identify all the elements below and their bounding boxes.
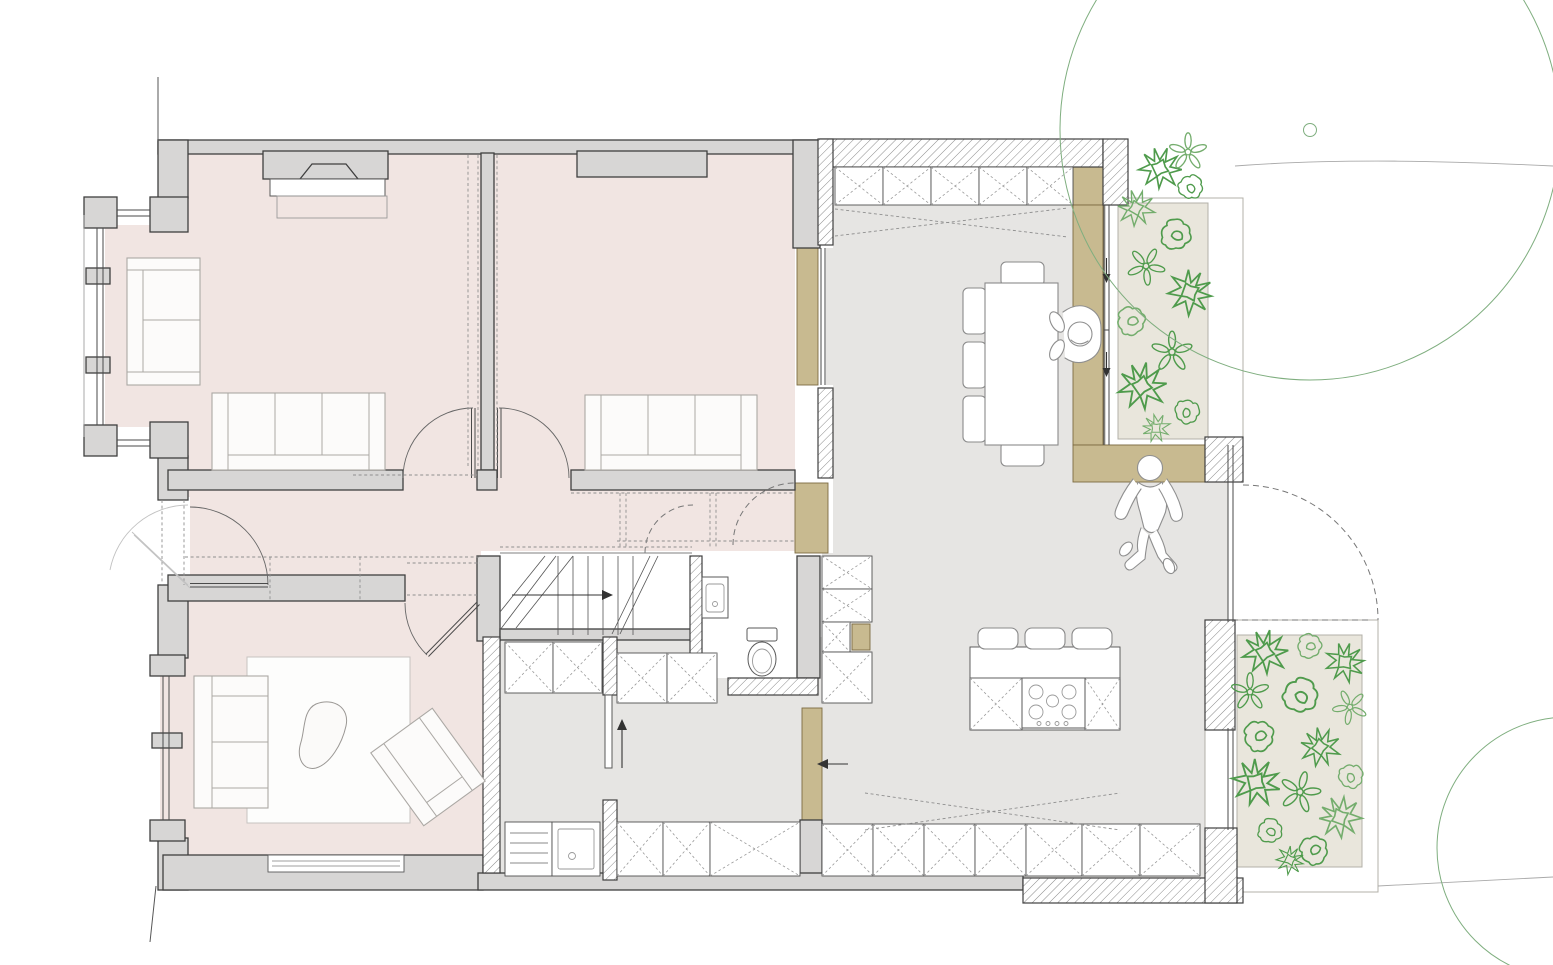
pier-garden-mid bbox=[1205, 620, 1235, 730]
room2-east-wall bbox=[793, 140, 820, 248]
drainer-unit bbox=[505, 822, 552, 876]
dining-chair bbox=[963, 396, 986, 442]
bay1-mullion bbox=[86, 268, 110, 284]
fireplace-mantel bbox=[270, 179, 385, 196]
floor-plan-canvas bbox=[0, 0, 1553, 965]
pier-garden-north bbox=[1205, 437, 1243, 482]
pocket-wall-b bbox=[603, 800, 617, 880]
floor-plan-drawing bbox=[0, 0, 1553, 965]
wc-east-wall bbox=[797, 556, 820, 678]
tan-door-top bbox=[1073, 167, 1105, 205]
tree-trunk-marker bbox=[1304, 124, 1317, 137]
south-window bbox=[268, 855, 404, 872]
sitting-room-north-wall bbox=[168, 575, 405, 601]
pier-garden-south bbox=[1205, 828, 1237, 903]
tan-cabinet-insert bbox=[852, 624, 870, 650]
pocket-panel-room2 bbox=[797, 245, 818, 385]
stair-edge-strip bbox=[500, 629, 692, 640]
dining-chair bbox=[1001, 442, 1044, 466]
site-contour-north bbox=[1235, 161, 1553, 166]
pocket-door-leaf bbox=[605, 695, 612, 768]
pocket-panel-kitchen bbox=[802, 708, 822, 823]
terrace-door-swing-dashed bbox=[1243, 485, 1378, 620]
dresser bbox=[127, 258, 200, 385]
bay2-pier bbox=[150, 655, 185, 676]
tree-canopy-arc-south bbox=[1437, 717, 1553, 965]
dining-set bbox=[963, 262, 1058, 466]
hallway-north-wall-a bbox=[168, 470, 403, 490]
bar-stool bbox=[1025, 628, 1065, 649]
site-contour-south bbox=[1378, 877, 1553, 886]
pocket-panel-hall bbox=[795, 483, 828, 553]
bay1-pier bbox=[84, 197, 117, 228]
wc-south-wall bbox=[728, 678, 818, 695]
bar-stool bbox=[978, 628, 1018, 649]
party-wall-between-rooms bbox=[481, 153, 494, 470]
dining-chair bbox=[1001, 262, 1044, 286]
pocket-wall-a bbox=[603, 637, 617, 695]
north-wall bbox=[158, 140, 823, 154]
sofa bbox=[212, 393, 385, 470]
dining-table bbox=[985, 283, 1058, 445]
site-boundary-bottom bbox=[150, 886, 156, 942]
sitting-room-east-wall bbox=[483, 637, 500, 873]
kitchen-island bbox=[970, 628, 1120, 730]
entry-threshold bbox=[158, 497, 190, 587]
gas-hob bbox=[1022, 678, 1085, 728]
chimney-breast-room2 bbox=[577, 151, 707, 177]
toilet-cistern bbox=[747, 628, 777, 641]
sofa bbox=[585, 395, 757, 470]
bar-stool bbox=[1072, 628, 1112, 649]
kitchen-sink bbox=[552, 822, 600, 876]
dining-chair bbox=[963, 288, 986, 334]
front-room-2-furniture bbox=[585, 395, 757, 470]
hallway-north-wall-b bbox=[571, 470, 795, 490]
dining-chair bbox=[963, 342, 986, 388]
